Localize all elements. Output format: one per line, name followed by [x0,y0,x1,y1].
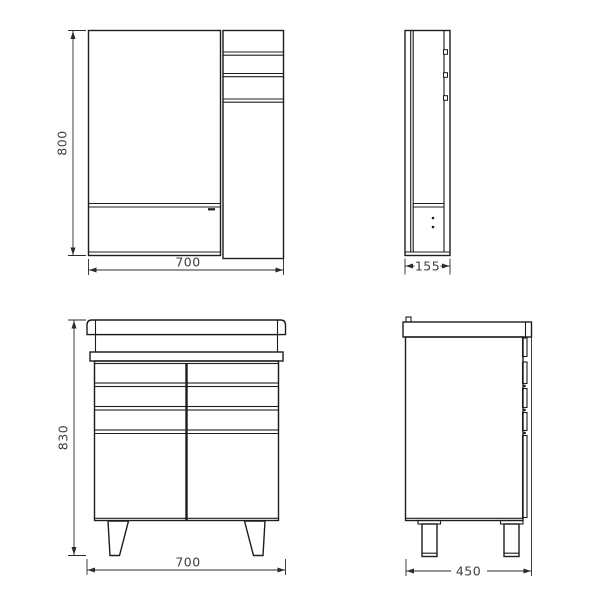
vanity-front-apron [96,335,278,352]
mirror-front-right-column [223,31,284,259]
vanity-height-label: 830 [56,425,71,450]
mirror-side-panel-lines [411,31,444,253]
technical-drawing-page: 800 700 155 [0,0,600,600]
mirror-side-outline [405,31,450,256]
vanity-cabinet-side-view [403,317,532,557]
shelf-pin-icon [444,50,448,55]
vanity-front-sink-top [87,320,286,335]
shelf-pin-icon [444,96,448,101]
vanity-depth-extension-lines [406,338,532,577]
vanity-front-right-leg [245,521,266,556]
mirror-side-bottom-panel-lines [405,204,450,253]
vanity-cabinet-front-view [87,320,286,556]
furniture-dimension-drawing: 800 700 155 [0,0,600,600]
vanity-depth-dimension: 450 [406,338,532,579]
vanity-side-top-band [403,322,532,337]
vanity-front-top-rail [90,352,283,361]
vanity-width-dimension: 700 [87,555,286,576]
mirror-front-bottom-panel-lines [89,204,221,253]
screw-dot-icon [432,226,435,229]
mirror-width-dimension: 700 [89,255,284,276]
vanity-width-label: 700 [175,555,200,570]
screw-dot-icon [524,432,526,434]
mirror-cabinet-side-view [405,31,450,256]
screw-dot-icon [524,409,526,411]
mirror-width-label: 700 [175,255,200,270]
vanity-height-extension-ticks [68,320,86,556]
vanity-height-dimension: 830 [56,320,87,556]
mirror-height-extension-ticks [68,31,86,256]
vanity-side-body [406,337,524,521]
vanity-depth-label: 450 [456,564,481,579]
mirror-height-label: 800 [55,130,70,155]
mirror-depth-label: 155 [415,259,440,274]
mirror-height-dimension: 800 [55,31,87,256]
mirror-front-shelf-lines [223,52,284,102]
vanity-side-right-leg [504,524,519,557]
mirror-front-main-frame [89,31,221,256]
screw-dot-icon [432,217,435,220]
vanity-front-sink-top-caps [96,321,278,335]
mirror-cabinet-front-view [89,31,284,259]
vanity-side-left-leg [422,524,437,557]
screw-dot-icon [524,385,526,387]
vanity-side-back-tab [406,317,411,322]
mirror-depth-dimension: 155 [405,259,450,275]
shelf-pin-icon [444,73,448,78]
vanity-front-left-leg [108,521,129,556]
